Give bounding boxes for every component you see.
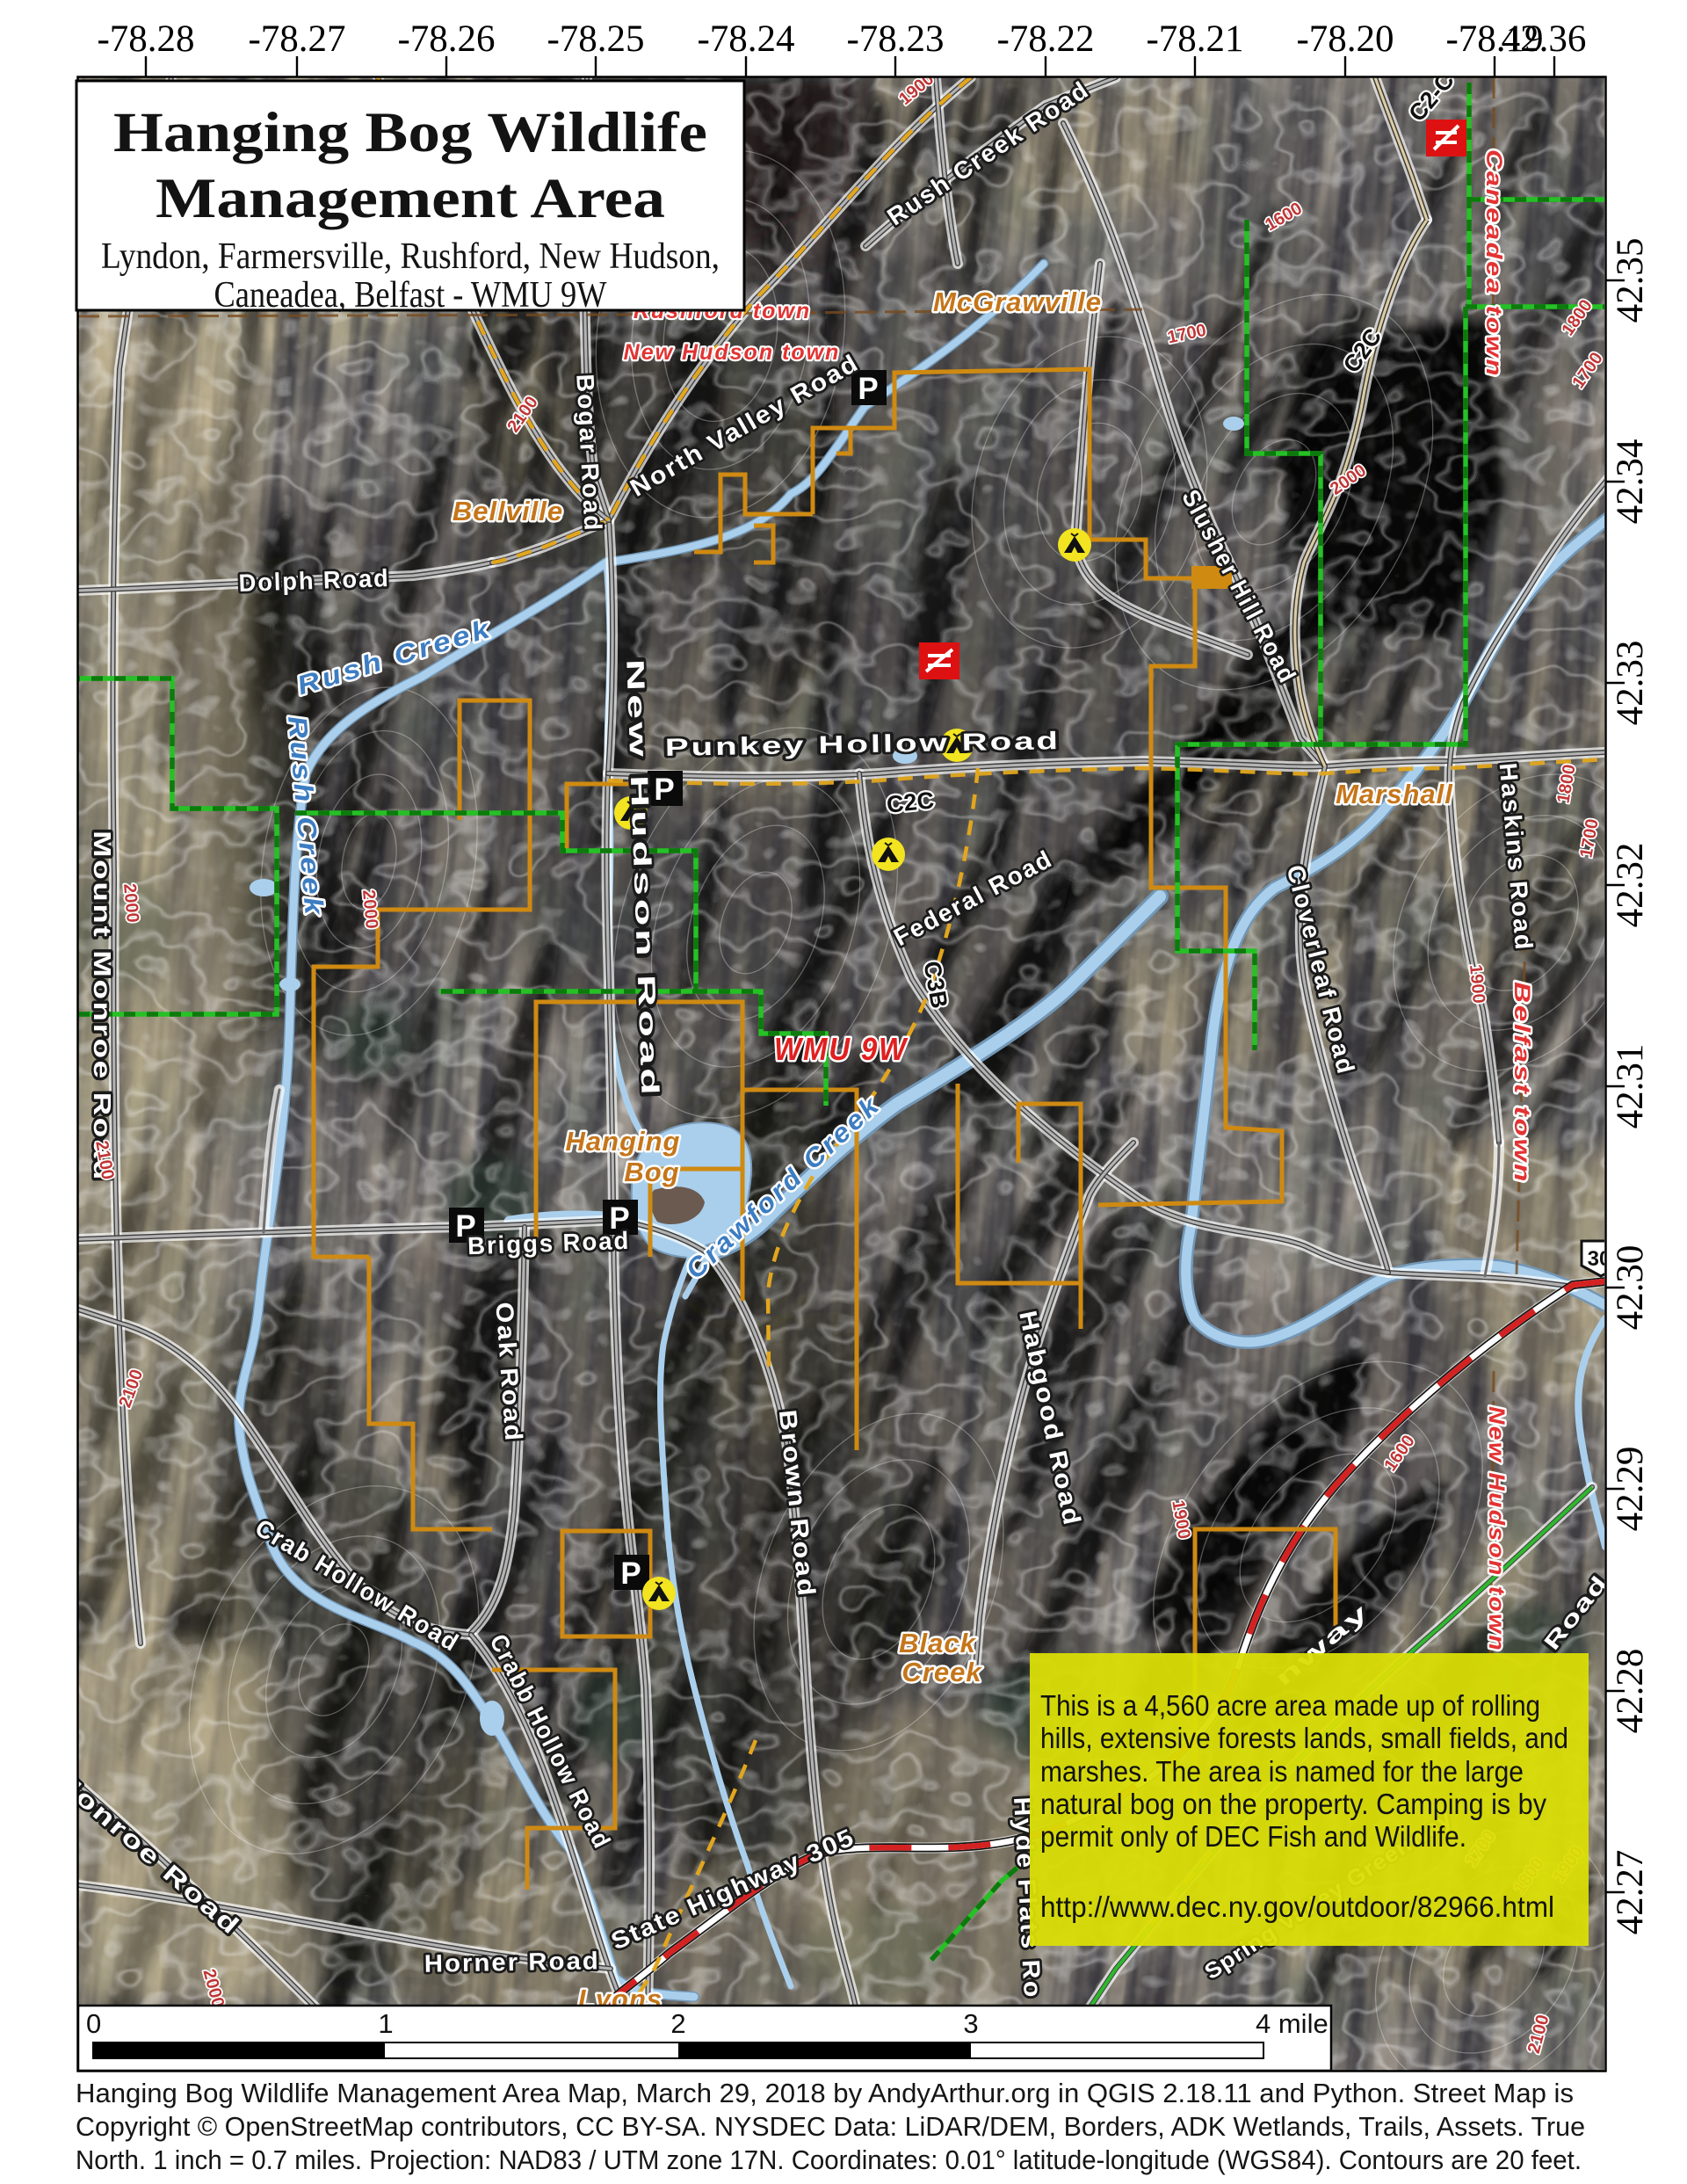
svg-text:-78.21: -78.21 <box>1146 18 1243 60</box>
svg-text:hills, extensive forests lands: hills, extensive forests lands, small fi… <box>1040 1722 1568 1754</box>
svg-text:-78.20: -78.20 <box>1296 18 1394 60</box>
svg-text:Caneadea town: Caneadea town <box>1481 149 1506 378</box>
svg-text:C2C: C2C <box>886 787 936 817</box>
svg-text:0: 0 <box>86 2008 101 2039</box>
svg-text:Belfast town: Belfast town <box>1510 982 1534 1184</box>
svg-text:Bog: Bog <box>624 1157 679 1187</box>
svg-text:Marshall: Marshall <box>1336 779 1453 809</box>
svg-text:permit only of DEC Fish and Wi: permit only of DEC Fish and Wildlife. <box>1040 1820 1466 1853</box>
svg-text:-78.25: -78.25 <box>547 18 644 60</box>
svg-text:Copyright © OpenStreetMap cont: Copyright © OpenStreetMap contributors, … <box>76 2111 1585 2142</box>
svg-text:Black: Black <box>899 1628 976 1658</box>
svg-text:Dolph Road: Dolph Road <box>238 564 390 597</box>
svg-text:McGrawville: McGrawville <box>933 287 1102 317</box>
svg-text:North. 1 inch = 0.7 miles. Pro: North. 1 inch = 0.7 miles. Projection: N… <box>76 2144 1582 2175</box>
svg-text:1: 1 <box>378 2008 393 2039</box>
svg-text:Briggs Road: Briggs Road <box>467 1227 631 1259</box>
svg-text:-78.24: -78.24 <box>697 18 794 60</box>
svg-text:This is a 4,560 acre area made: This is a 4,560 acre area made up of rol… <box>1040 1689 1540 1722</box>
svg-text:42.36: 42.36 <box>1502 18 1587 60</box>
svg-text:Mount Monroe Road: Mount Monroe Road <box>89 831 116 1182</box>
svg-text:-78.22: -78.22 <box>996 18 1094 60</box>
svg-text:Hanging: Hanging <box>566 1126 681 1157</box>
svg-text:P: P <box>858 372 878 406</box>
svg-text:New Hudson town: New Hudson town <box>624 340 841 365</box>
svg-text:-78.27: -78.27 <box>248 18 345 60</box>
svg-text:Hanging Bog Wildlife: Hanging Bog Wildlife <box>113 101 707 164</box>
svg-text:2000: 2000 <box>119 882 142 923</box>
svg-text:marshes. The area is named for: marshes. The area is named for the large <box>1040 1755 1524 1788</box>
svg-text:3: 3 <box>963 2008 978 2039</box>
svg-text:Horner Road: Horner Road <box>424 1947 601 1977</box>
svg-text:New Hudson town: New Hudson town <box>1484 1406 1509 1652</box>
svg-text:WMU 9W: WMU 9W <box>774 1031 909 1067</box>
svg-text:1900: 1900 <box>1466 963 1488 1004</box>
svg-text:-78.26: -78.26 <box>397 18 495 60</box>
svg-text:http://www.dec.ny.gov/outdoor/: http://www.dec.ny.gov/outdoor/82966.html <box>1040 1890 1554 1923</box>
svg-text:Creek: Creek <box>901 1657 982 1687</box>
svg-text:Lyndon, Farmersville, Rushford: Lyndon, Farmersville, Rushford, New Huds… <box>101 236 720 277</box>
svg-text:-78.28: -78.28 <box>97 18 194 60</box>
svg-text:-78.23: -78.23 <box>846 18 944 60</box>
svg-text:Caneadea, Belfast - WMU 9W: Caneadea, Belfast - WMU 9W <box>214 275 607 316</box>
svg-text:2000: 2000 <box>358 889 381 929</box>
svg-text:2: 2 <box>670 2008 685 2039</box>
svg-text:natural bog on the property. C: natural bog on the property. Camping is … <box>1040 1788 1546 1820</box>
svg-text:P: P <box>654 773 674 807</box>
svg-text:P: P <box>620 1556 641 1591</box>
svg-text:Hanging Bog Wildlife Managemen: Hanging Bog Wildlife Management Area Map… <box>76 2078 1574 2108</box>
svg-text:Bellville: Bellville <box>453 496 563 526</box>
svg-text:4 mile: 4 mile <box>1256 2008 1329 2039</box>
svg-text:Management Area: Management Area <box>156 167 665 230</box>
